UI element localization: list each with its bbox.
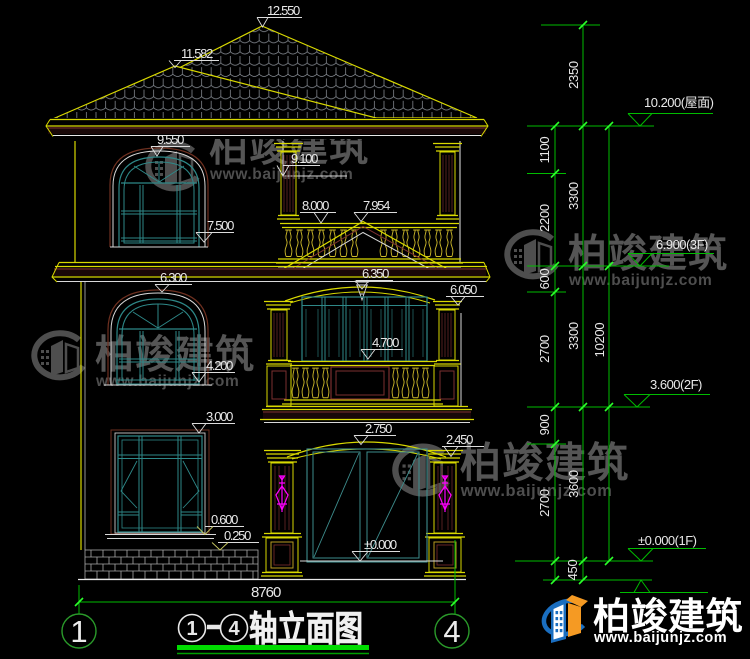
- svg-text:4: 4: [228, 618, 240, 640]
- svg-text:1100: 1100: [537, 137, 552, 164]
- svg-text:±0.000(1F): ±0.000(1F): [638, 533, 697, 548]
- svg-text:12.550: 12.550: [267, 3, 300, 18]
- svg-text:3300: 3300: [566, 182, 581, 210]
- svg-text:6.050: 6.050: [450, 282, 477, 297]
- svg-text:1: 1: [70, 614, 87, 649]
- svg-text:2.750: 2.750: [365, 421, 392, 436]
- svg-text:4.700: 4.700: [372, 335, 399, 350]
- svg-text:±0.000: ±0.000: [364, 537, 397, 552]
- svg-text:8760: 8760: [251, 584, 281, 601]
- svg-text:4.200: 4.200: [206, 358, 233, 373]
- svg-text:3.000: 3.000: [206, 409, 233, 424]
- svg-text:3300: 3300: [566, 322, 581, 350]
- svg-text:2200: 2200: [537, 204, 552, 232]
- svg-text:7.500: 7.500: [207, 218, 234, 233]
- svg-text:3.600(2F): 3.600(2F): [650, 377, 702, 392]
- svg-text:9.100: 9.100: [291, 151, 318, 166]
- svg-text:10.200(屋面): 10.200(屋面): [644, 95, 714, 110]
- svg-text:8.000: 8.000: [302, 198, 329, 213]
- svg-text:2700: 2700: [537, 489, 552, 517]
- svg-text:www.baijunjz.com: www.baijunjz.com: [593, 630, 727, 646]
- svg-text:6.350: 6.350: [362, 266, 389, 281]
- svg-text:900: 900: [537, 415, 552, 436]
- svg-text:6.300: 6.300: [160, 270, 187, 285]
- svg-text:7.954: 7.954: [363, 198, 390, 213]
- svg-text:轴立面图: 轴立面图: [249, 610, 363, 649]
- svg-text:2350: 2350: [566, 61, 581, 89]
- svg-text:11.582: 11.582: [181, 46, 213, 61]
- svg-text:0.250: 0.250: [224, 528, 251, 543]
- svg-text:2700: 2700: [537, 335, 552, 363]
- svg-text:6.900(3F): 6.900(3F): [656, 237, 708, 252]
- svg-text:450: 450: [565, 560, 580, 581]
- svg-text:2.450: 2.450: [446, 432, 473, 447]
- svg-text:9.550: 9.550: [157, 132, 184, 147]
- svg-text:1: 1: [186, 618, 197, 640]
- svg-text:600: 600: [537, 269, 552, 290]
- svg-text:3600: 3600: [566, 470, 581, 498]
- svg-text:0.600: 0.600: [211, 512, 238, 527]
- svg-text:10200: 10200: [592, 323, 607, 358]
- svg-text:4: 4: [443, 614, 460, 649]
